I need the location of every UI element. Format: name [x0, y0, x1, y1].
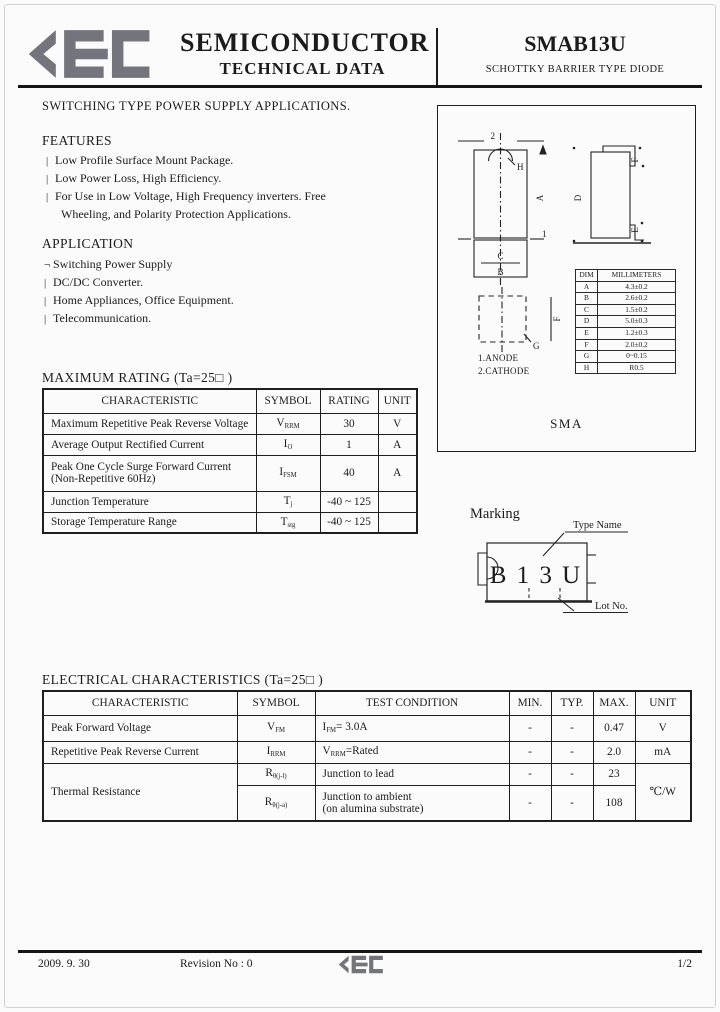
kec-logo-glyphs — [29, 30, 150, 78]
part-number: SMAB13U — [455, 31, 695, 57]
col-max: MAX. — [593, 691, 635, 715]
application-item: |Telecommunication. — [44, 310, 234, 328]
application-list: ¬Switching Power Supply |DC/DC Converter… — [44, 256, 234, 328]
table-row: Junction Temperature Tj -40 ~ 125 — [43, 491, 417, 512]
dim-label-e: E — [630, 227, 640, 233]
symbol-cell: Tj — [256, 491, 320, 512]
symbol-cell: VFM — [237, 715, 315, 741]
table-row: C1.5±0.2 — [576, 304, 676, 316]
condition-cell: VRRM=Rated — [315, 741, 509, 763]
header-divider — [436, 28, 438, 85]
side-view-body — [591, 152, 630, 238]
type-name-label: Type Name — [573, 520, 622, 531]
table-row: Peak Forward Voltage VFM IFM= 3.0A - - 0… — [43, 715, 691, 741]
application-title: APPLICATION — [42, 236, 133, 252]
table-row: Thermal Resistance Rθ(j-l) Junction to l… — [43, 763, 691, 785]
table-row: HR0.5 — [576, 362, 676, 374]
feature-item: Wheeling, and Polarity Protection Applic… — [46, 206, 326, 223]
footer-page-number: 1/2 — [677, 958, 692, 970]
elec-title: ELECTRICAL CHARACTERISTICS (Ta=25□ ) — [42, 672, 323, 688]
max-rating-table: CHARACTERISTIC SYMBOL RATING UNIT Maximu… — [42, 388, 418, 534]
bullet-mark: ¬ — [44, 257, 53, 274]
bullet-mark: | — [44, 275, 53, 292]
package-name: SMA — [438, 416, 695, 432]
footer-rule — [18, 950, 702, 953]
footer-date: 2009. 9. 30 — [38, 958, 90, 970]
col-symbol: SYMBOL — [256, 389, 320, 413]
condition-cell: IFM= 3.0A — [315, 715, 509, 741]
dim-label-d: D — [573, 194, 583, 201]
table-header-row: DIM MILLIMETERS — [576, 270, 676, 282]
table-header-row: CHARACTERISTIC SYMBOL RATING UNIT — [43, 389, 417, 413]
intro-line: SWITCHING TYPE POWER SUPPLY APPLICATIONS… — [42, 99, 351, 114]
table-row: E1.2±0.3 — [576, 327, 676, 339]
application-item: ¬Switching Power Supply — [44, 256, 234, 274]
bullet-mark: | — [44, 293, 53, 310]
lot-no-label: Lot No. — [595, 601, 628, 612]
table-row: Storage Temperature Range Tstg -40 ~ 125 — [43, 512, 417, 533]
max-rating-title: MAXIMUM RATING (Ta=25□ ) — [42, 370, 233, 386]
doc-subtitle: TECHNICAL DATA — [180, 59, 425, 79]
col-typ: TYP. — [551, 691, 593, 715]
col-min: MIN. — [509, 691, 551, 715]
table-row: Average Output Rectified Current IO 1 A — [43, 434, 417, 455]
feature-item: |Low Power Loss, High Efficiency. — [46, 170, 326, 188]
features-title: FEATURES — [42, 133, 112, 149]
cathode-note: 2.CATHODE — [478, 366, 529, 376]
dim-label-c: C — [497, 251, 503, 261]
col-unit: UNIT — [635, 691, 691, 715]
application-item: |Home Appliances, Office Equipment. — [44, 292, 234, 310]
symbol-cell: Rθ(j-a) — [237, 785, 315, 821]
header-rule — [18, 85, 702, 88]
table-row: G0~0.15 — [576, 351, 676, 363]
dim-label-a: A — [535, 194, 545, 201]
bullet-mark: | — [46, 153, 55, 170]
dim-label-f: F — [552, 316, 562, 321]
marking-figure: Marking Type Name B 1 3 U Lot No. — [440, 498, 670, 623]
col-unit: UNIT — [378, 389, 417, 413]
bullet-mark: | — [44, 311, 53, 328]
table-row: Repetitive Peak Reverse Current IRRM VRR… — [43, 741, 691, 763]
footer-revision: Revision No : 0 — [180, 958, 253, 970]
features-list: |Low Profile Surface Mount Package. |Low… — [46, 152, 326, 223]
footer-kec-logo: KEC — [337, 955, 383, 974]
dimension-table: DIM MILLIMETERS A4.3±0.2 B2.6±0.2 C1.5±0… — [575, 269, 676, 374]
symbol-cell: Rθ(j-l) — [237, 763, 315, 785]
symbol-cell: IFSM — [256, 455, 320, 491]
col-symbol: SYMBOL — [237, 691, 315, 715]
col-characteristic: CHARACTERISTIC — [43, 389, 256, 413]
datasheet-page: KEC SEMICONDUCTOR TECHNICAL DATA SMAB13U… — [0, 0, 720, 1012]
dim-label-b: B — [497, 267, 503, 277]
kec-logo-glyphs — [339, 956, 383, 973]
table-row: A4.3±0.2 — [576, 281, 676, 293]
pin2-label: 2 — [491, 131, 496, 141]
feature-item: |For Use in Low Voltage, High Frequency … — [46, 188, 326, 206]
package-outline-figure: 2 H A 1 C B F G D F E DIM MILLIMETERS A4… — [437, 105, 696, 452]
col-rating: RATING — [320, 389, 378, 413]
feature-item: |Low Profile Surface Mount Package. — [46, 152, 326, 170]
col-characteristic: CHARACTERISTIC — [43, 691, 237, 715]
bullet-mark: | — [46, 171, 55, 188]
symbol-cell: VRRM — [256, 413, 320, 434]
symbol-cell: IRRM — [237, 741, 315, 763]
col-test-condition: TEST CONDITION — [315, 691, 509, 715]
pin1-label: 1 — [542, 229, 547, 239]
marking-code: B 1 3 U — [490, 562, 582, 589]
elec-table: CHARACTERISTIC SYMBOL TEST CONDITION MIN… — [42, 690, 692, 822]
doc-title: SEMICONDUCTOR — [180, 28, 425, 58]
table-row: D5.0±0.3 — [576, 316, 676, 328]
dim-label-f2: F — [630, 157, 640, 162]
application-item: |DC/DC Converter. — [44, 274, 234, 292]
symbol-cell: Tstg — [256, 512, 320, 533]
part-type: SCHOTTKY BARRIER TYPE DIODE — [455, 64, 695, 75]
table-row: Peak One Cycle Surge Forward Current (No… — [43, 455, 417, 491]
table-row: Maximum Repetitive Peak Reverse Voltage … — [43, 413, 417, 434]
table-row: F2.0±0.2 — [576, 339, 676, 351]
dim-label-g: G — [533, 341, 540, 351]
table-row: B2.6±0.2 — [576, 293, 676, 305]
table-header-row: CHARACTERISTIC SYMBOL TEST CONDITION MIN… — [43, 691, 691, 715]
bullet-mark: | — [46, 189, 55, 206]
anode-note: 1.ANODE — [478, 353, 518, 363]
kec-logo: KEC — [22, 28, 152, 80]
dim-label-h: H — [517, 162, 524, 172]
marking-title: Marking — [470, 506, 520, 522]
symbol-cell: IO — [256, 434, 320, 455]
